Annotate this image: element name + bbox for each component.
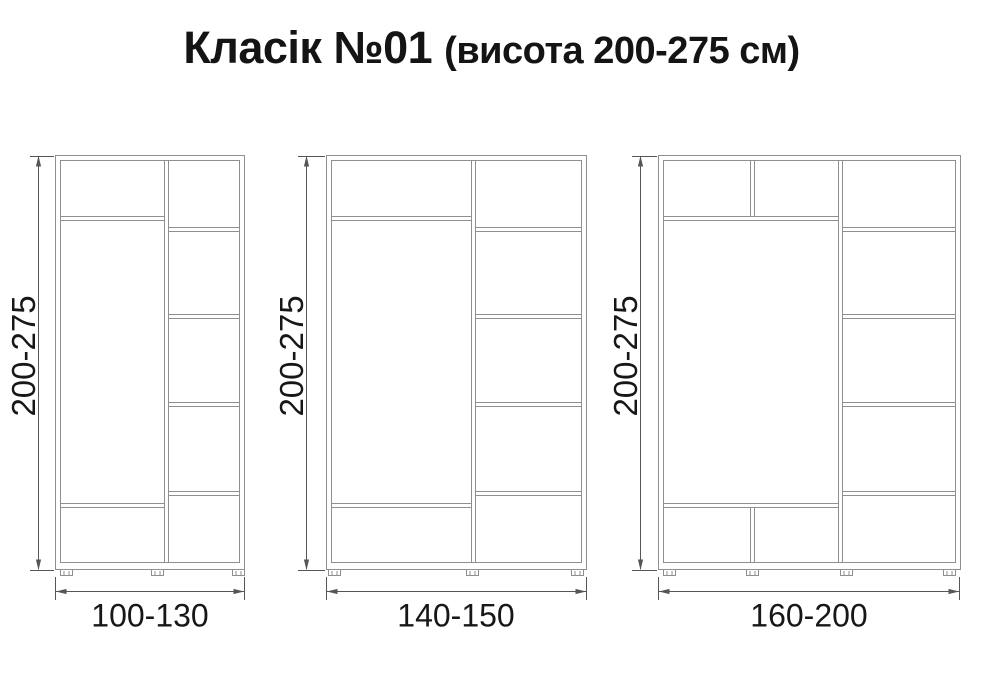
shelf	[476, 403, 582, 407]
wardrobe-3-drawing	[632, 156, 961, 601]
vertical-divider	[839, 161, 843, 563]
shelf	[476, 228, 582, 232]
arrow-right	[234, 589, 245, 594]
arrow-down	[304, 560, 309, 571]
arrow-up	[638, 156, 643, 167]
arrow-left	[56, 589, 67, 594]
arrow-left	[327, 589, 338, 594]
wardrobe-diagrams	[0, 0, 983, 700]
arrow-up	[304, 156, 309, 167]
shelf	[476, 492, 582, 496]
shelf	[169, 315, 240, 319]
diagram-page: Класік №01 (висота 200-275 см)	[0, 0, 983, 700]
feet	[329, 570, 584, 576]
shelf	[332, 217, 472, 221]
top-sub-divider	[751, 161, 755, 217]
shelf	[61, 217, 165, 221]
shelf	[169, 492, 240, 496]
shelf	[61, 504, 165, 508]
wardrobe-2-drawing	[298, 156, 587, 601]
bottom-sub-divider	[751, 508, 755, 563]
shelf	[332, 504, 472, 508]
feet	[61, 570, 245, 576]
vertical-divider	[472, 161, 476, 563]
wardrobe-3-height-label: 200-275	[607, 295, 645, 416]
arrow-right	[949, 589, 960, 594]
wardrobe-3-width-label: 160-200	[750, 598, 867, 635]
vertical-divider	[165, 161, 169, 563]
shelf	[664, 504, 839, 508]
wardrobe-2-height-label: 200-275	[273, 295, 311, 416]
feet	[664, 570, 956, 576]
shelf	[664, 217, 839, 221]
wardrobe-1-height-label: 200-275	[5, 295, 43, 416]
wardrobe-1-drawing	[30, 156, 245, 601]
arrow-up	[36, 156, 41, 167]
shelf	[169, 403, 240, 407]
shelf	[843, 228, 956, 232]
shelf	[843, 492, 956, 496]
shelf	[476, 315, 582, 319]
arrow-right	[576, 589, 587, 594]
wardrobe-1-width-label: 100-130	[91, 598, 208, 635]
shelf	[843, 315, 956, 319]
wardrobe-2-width-label: 140-150	[397, 598, 514, 635]
arrow-down	[638, 560, 643, 571]
shelf	[169, 228, 240, 232]
arrow-left	[659, 589, 670, 594]
arrow-down	[36, 560, 41, 571]
shelf	[843, 403, 956, 407]
